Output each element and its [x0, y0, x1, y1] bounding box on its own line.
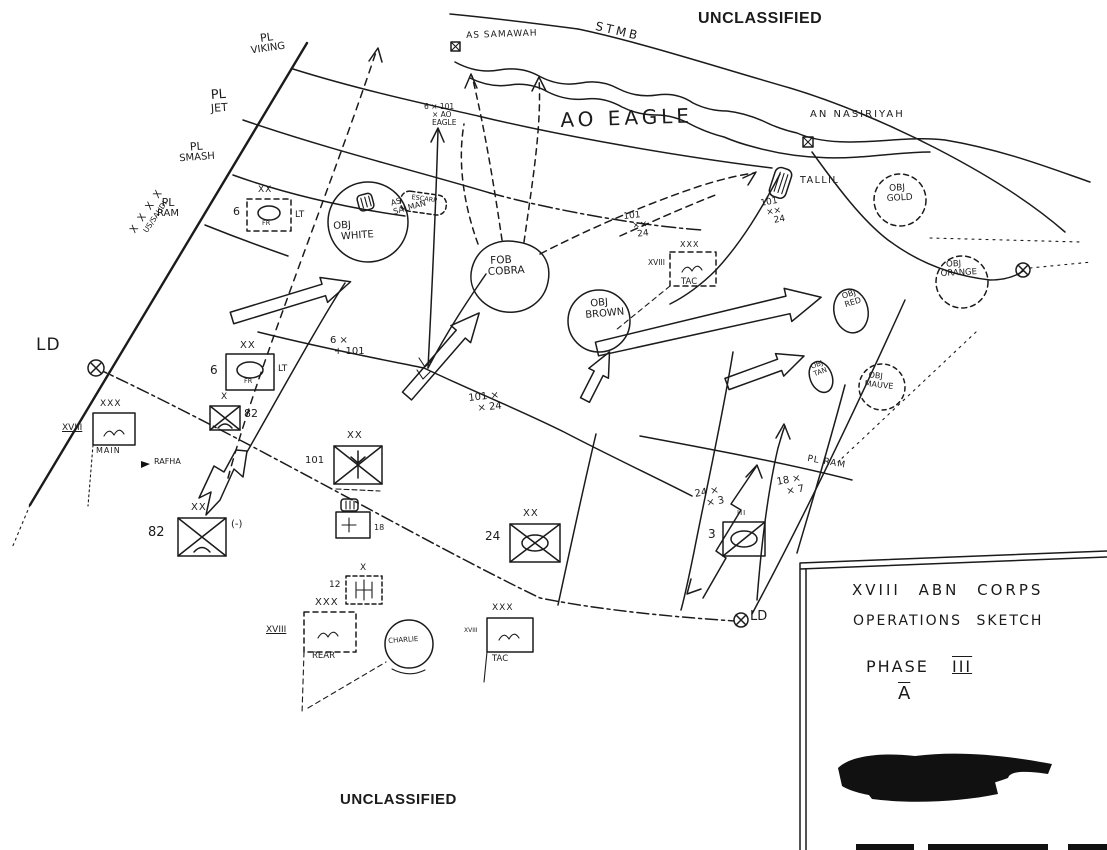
unit-fr6-branch: FR — [244, 378, 252, 385]
cp-rear-name: REAR — [312, 652, 335, 661]
title-line4: A — [898, 684, 910, 703]
cp-tac-forward-name: TAC — [681, 278, 697, 287]
boundary-101-24-c: 101 × × 24 — [468, 391, 502, 416]
unit-fr6-planned-suffix: LT — [295, 211, 304, 221]
cp-rear-echelon: XXX — [315, 598, 339, 609]
classification-bottom: UNCLASSIFIED — [340, 792, 457, 808]
phase-line-label-jet: PL JET — [196, 87, 242, 116]
unit-3acr-echelon: III — [737, 510, 746, 518]
cp-main-corps: XVIII — [62, 424, 82, 434]
arrow-to-fob-cobra — [397, 304, 489, 404]
cp-main-echelon: XXX — [100, 400, 122, 410]
cp-rear-corps: XVIII — [266, 626, 286, 636]
unit-101div-echelon: XX — [347, 431, 363, 442]
boundary-6-101-mid: 6 × + 101 — [330, 336, 365, 358]
classification-top: UNCLASSIFIED — [698, 10, 822, 27]
cp-tac-name: TAC — [492, 655, 508, 664]
unit-3acr-symbol — [723, 522, 765, 556]
line-of-departure — [88, 263, 1030, 627]
unit-101div-num: 101 — [305, 456, 324, 467]
cp-main-symbol — [88, 413, 135, 506]
unit-82bde-symbol — [210, 406, 240, 430]
unit-3acr-num: 3 — [708, 528, 716, 541]
airfield-icon — [356, 192, 375, 211]
arrow-to-obj-white — [228, 269, 354, 330]
arrow-to-obj-brown — [575, 347, 619, 405]
obj-gold-label: OBJ GOLD — [886, 184, 913, 205]
river — [450, 14, 1090, 182]
unit-24div-num: 24 — [485, 530, 500, 543]
unit-82bde-num: 82 — [244, 408, 258, 420]
ao-eagle-label: AO EAGLE — [560, 105, 693, 131]
cp-tac-echelon: XXX — [492, 604, 514, 614]
obj-brown-label: OBJ BROWN — [584, 297, 625, 322]
rafha-label: RAFHA — [154, 458, 181, 467]
unit-18-symbol — [336, 499, 370, 538]
unit-82bde-echelon: X — [221, 393, 227, 403]
redaction-mark — [838, 754, 1052, 802]
cp-tac-forward-corps: XVIII — [648, 259, 665, 267]
cp-rear-symbol — [302, 612, 386, 714]
rafha-marker-icon — [141, 461, 150, 468]
cp-tac-symbol — [484, 618, 533, 682]
town-icon — [803, 137, 813, 147]
attack-arrows — [199, 269, 825, 515]
unit-82div-suffix: (-) — [231, 520, 242, 531]
arrow-to-obj-red — [593, 281, 825, 366]
ld-label-right: LD — [750, 610, 767, 624]
obj-mauve-label: OBJ MAUVE — [864, 371, 894, 391]
obj-orange-label: OBJ ORANGE — [940, 259, 977, 279]
title-line2: OPERATIONS SKETCH — [853, 614, 1043, 629]
unit-12avn-num: 12 — [329, 581, 340, 591]
unit-fr6-planned-num: 6 — [233, 206, 240, 218]
checkpoint-icon — [1016, 263, 1030, 277]
phase-line-label-smash: PL SMASH — [168, 139, 225, 166]
command-post-symbols — [88, 252, 716, 714]
unit-24div-symbol — [510, 524, 560, 562]
unit-18-num: 18 — [374, 524, 384, 533]
an-nasiriyah-label: AN NASIRIYAH — [810, 110, 905, 121]
unit-82div-num: 82 — [148, 526, 165, 540]
unit-fr6-planned-echelon: XX — [258, 186, 272, 196]
cp-tac-forward-symbol — [616, 252, 716, 330]
operations-sketch-page: UNCLASSIFIED UNCLASSIFIED PL VIKING PL J… — [0, 0, 1107, 850]
unit-fr6-suffix: LT — [278, 365, 287, 375]
cp-tac-forward-echelon: XXX — [680, 241, 699, 250]
scan-artifact-bars — [856, 844, 1107, 850]
checkpoint-icon — [734, 613, 748, 627]
unit-24div-echelon: XX — [523, 509, 539, 520]
checkpoint-icon — [88, 360, 104, 376]
unit-82div-symbol — [178, 518, 226, 556]
unit-fr6-num: 6 — [210, 364, 218, 377]
airfield-icon — [768, 166, 793, 200]
boundary-18-7: 18 × × 7 — [776, 473, 805, 499]
title-line3: PHASE III — [866, 658, 972, 675]
town-icon — [451, 42, 460, 51]
arrow-to-obj-tan — [723, 345, 808, 396]
cp-main-name: MAIN — [96, 447, 121, 456]
sketch-line-art — [0, 0, 1107, 850]
fob-cobra-label: FOB COBRA — [487, 254, 525, 279]
boundary-6-101-north: 6 × 101 × AO EAGLE — [424, 103, 456, 127]
unit-12avn-symbol — [346, 576, 382, 604]
unit-fr6-planned-branch: FR — [262, 220, 270, 227]
unit-82div-echelon: XX — [191, 503, 207, 514]
ld-label-left: LD — [36, 336, 61, 354]
obj-white-label: OBJ WHITE — [333, 219, 374, 243]
tallil-label: TALLIL — [800, 176, 839, 186]
west-boundary-line — [12, 43, 307, 548]
unit-101div-symbol — [334, 446, 382, 491]
cp-tac-corps: XVIII — [464, 628, 478, 634]
title-line1: XVIII ABN CORPS — [852, 582, 1043, 598]
boundary-101-24-a: 101 ×× 24 — [623, 211, 649, 242]
unit-12avn-echelon: X — [360, 564, 366, 574]
unit-fr6-echelon: XX — [240, 341, 256, 352]
